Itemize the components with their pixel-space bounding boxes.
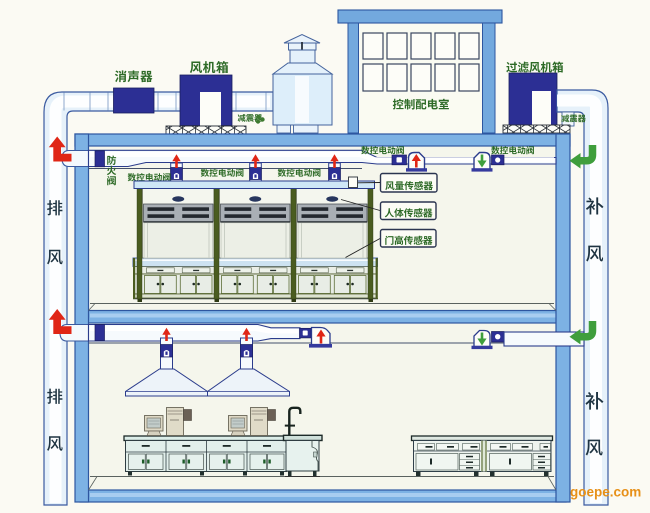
- svg-text:goepe.com: goepe.com: [570, 485, 641, 500]
